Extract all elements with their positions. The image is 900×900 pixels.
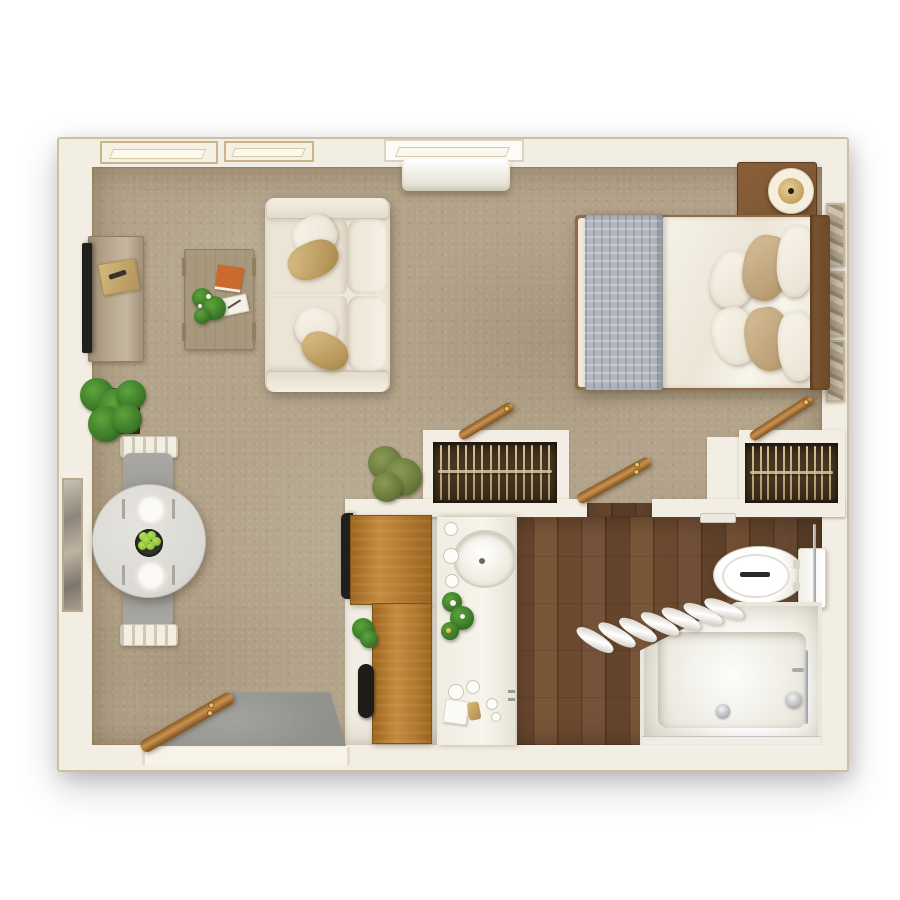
clothes-hanger-line (540, 445, 542, 500)
clothes-hanger-line (440, 445, 442, 500)
tissue-box (442, 698, 469, 725)
vanity-handle (508, 690, 515, 693)
double-bed (575, 215, 830, 390)
tub-drain (716, 704, 730, 718)
floor-plant (112, 404, 142, 434)
clothes-hanger-line (523, 445, 525, 500)
bathroom-door-threshold (587, 503, 652, 517)
clothes-hanger-line (457, 445, 459, 500)
toilet-hinge (793, 582, 800, 591)
window-pane (109, 149, 206, 159)
clothes-hanger-line (752, 446, 754, 500)
door-knob (802, 398, 810, 406)
window-middle (224, 141, 314, 162)
wood-headboard (810, 215, 830, 390)
vanity-glass (445, 574, 459, 588)
plant-flower (198, 304, 202, 308)
clothes-hanger-line (473, 445, 475, 500)
vanity-glass (444, 522, 458, 536)
shower-knob (786, 692, 802, 708)
toiletry-jar (486, 698, 498, 710)
left-closet-interior (433, 442, 557, 503)
toilet-hinge (793, 560, 800, 569)
clothes-hanger-line (515, 445, 517, 500)
toiletry-jar (491, 712, 501, 722)
clothes-hanger-line (465, 445, 467, 500)
window-pane (395, 147, 510, 157)
bouquet-flower (450, 600, 456, 606)
toiletry-cup (448, 684, 464, 700)
sink-drain (479, 558, 485, 564)
shower-slide-bar (804, 650, 808, 724)
door-knob (633, 461, 641, 469)
bouquet-flower (446, 628, 451, 633)
toilet-tank (798, 548, 826, 608)
clothes-hanger-line (806, 446, 808, 500)
table-lamp (768, 168, 814, 214)
door-knob (207, 701, 215, 709)
floor-plan (0, 0, 900, 900)
right-closet-interior (745, 443, 838, 503)
clothes-hanger-line (775, 446, 777, 500)
clothes-hanger-line (760, 446, 762, 500)
sofa-armrest (267, 198, 388, 218)
flat-screen-tv (82, 243, 92, 353)
toiletry-cup (466, 680, 480, 694)
fruit-bowl (135, 529, 163, 557)
kitchen-counter-plant (360, 630, 378, 648)
fork (122, 499, 125, 519)
sofa-back-cushion (347, 219, 386, 294)
clothes-hanger-line (448, 445, 450, 500)
clothes-hanger-line (531, 445, 533, 500)
clothes-hanger-line (829, 446, 831, 500)
clothes-hanger-line (481, 445, 483, 500)
clothes-hanger-line (783, 446, 785, 500)
sunglasses (108, 270, 127, 280)
vanity-glass (443, 548, 459, 564)
gold-tray (98, 258, 141, 296)
window-left (100, 141, 218, 164)
door-knob (503, 405, 511, 413)
wall-ac-unit (402, 159, 510, 191)
clothes-hanger-line (498, 445, 500, 500)
window-pane (231, 148, 305, 157)
clothes-hanger-line (790, 446, 792, 500)
orange-book (214, 264, 243, 292)
round-sink (453, 530, 517, 588)
dining-chair-back (120, 624, 178, 646)
tall-wall-mirror (62, 478, 83, 612)
entry-threshold (142, 747, 350, 765)
tv-console (88, 236, 144, 362)
pen (227, 299, 241, 309)
toilet-seat-slot (740, 572, 770, 577)
oak-counter-top (350, 515, 432, 605)
table-side-rail (252, 258, 256, 276)
clothes-hanger-line (814, 446, 816, 500)
clothes-hanger-line (767, 446, 769, 500)
grey-folded-blanket (585, 215, 663, 390)
clothes-hanger-line (798, 446, 800, 500)
two-seat-sofa (265, 198, 390, 392)
sofa-back-cushion (347, 296, 386, 371)
round-dining-table (92, 484, 206, 598)
dinner-plate (134, 559, 168, 593)
clothes-hanger-line (506, 445, 508, 500)
kitchen-dark-handle (358, 664, 374, 718)
folded-shower-curtain (585, 595, 750, 665)
plant-flower (206, 294, 211, 299)
shower-handle (792, 668, 804, 672)
clothes-hanger-line (490, 445, 492, 500)
sofa-armrest (267, 372, 388, 392)
glass-panel-edge (642, 736, 820, 744)
closet-side-plant (372, 472, 402, 502)
clothes-hanger-line (548, 445, 550, 500)
table-side-rail (252, 323, 256, 341)
dinner-plate (134, 493, 168, 527)
knife (172, 499, 175, 519)
lamp-finial (788, 188, 794, 194)
coffee-table-plant (194, 308, 210, 324)
table-side-rail (182, 323, 186, 341)
green-apple (142, 536, 151, 545)
table-side-rail (182, 258, 186, 276)
fork (122, 565, 125, 585)
oak-counter-column (372, 603, 432, 744)
vanity-handle (508, 698, 515, 701)
clothes-hanger-line (821, 446, 823, 500)
bouquet-flower (460, 614, 465, 619)
toilet-paper-holder (700, 513, 736, 523)
knife (172, 565, 175, 585)
